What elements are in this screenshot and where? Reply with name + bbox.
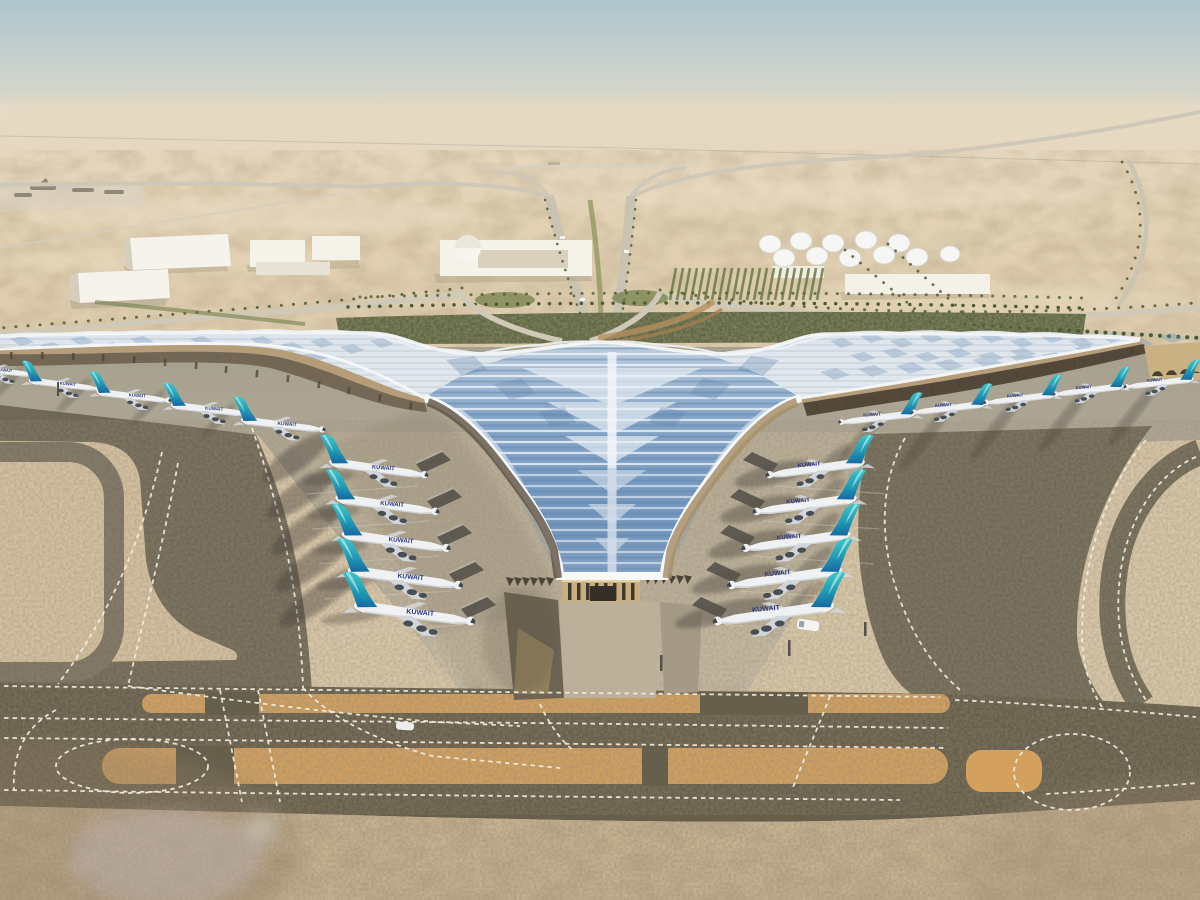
svg-text:KUWAIT: KUWAIT <box>0 367 13 373</box>
